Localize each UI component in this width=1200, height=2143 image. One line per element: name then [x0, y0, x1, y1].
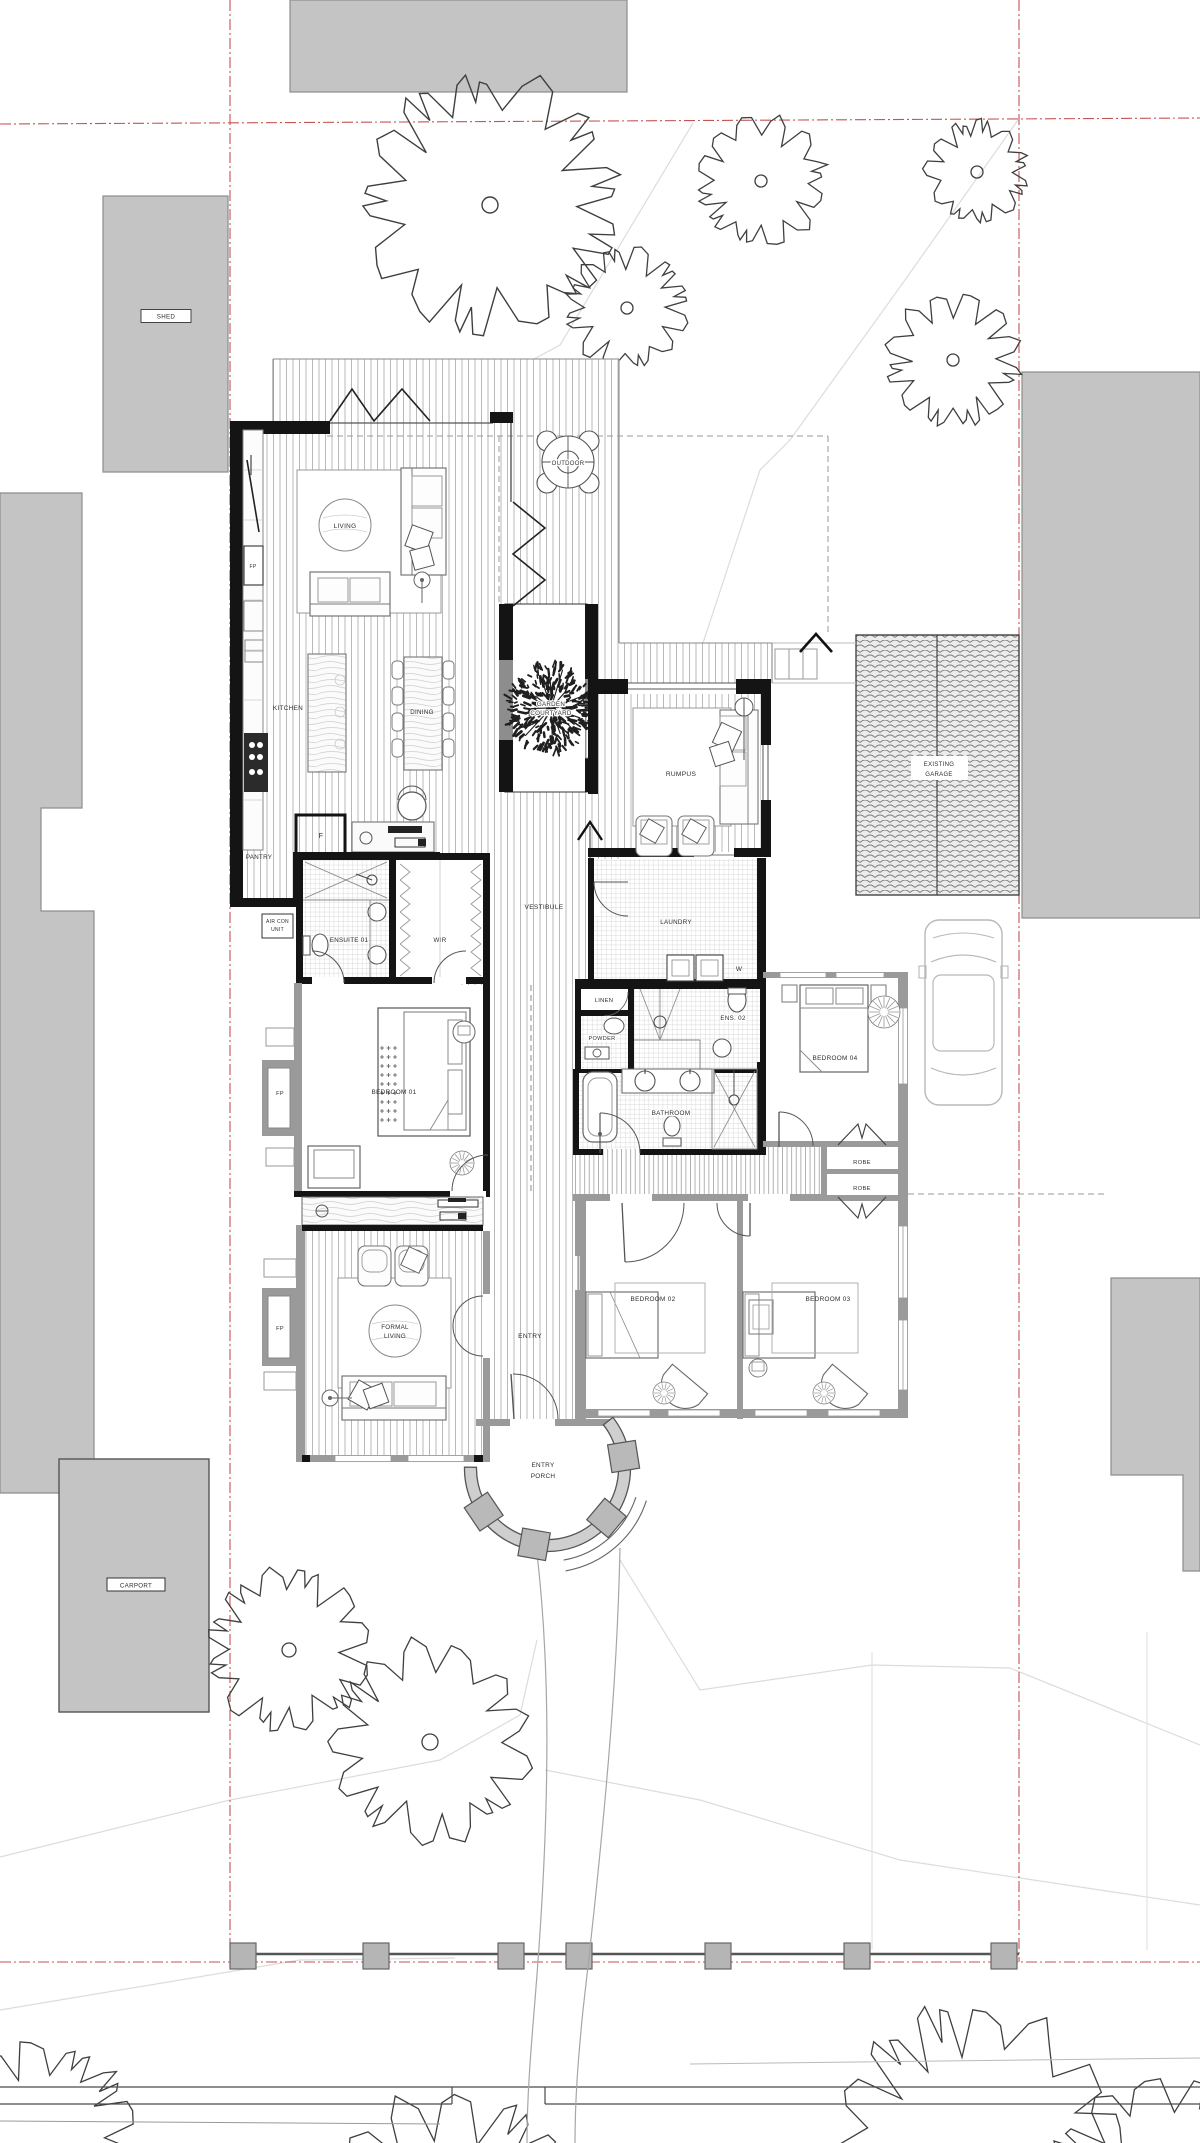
svg-text:OUTDOOR: OUTDOOR	[552, 461, 585, 467]
svg-text:ROBE: ROBE	[853, 1186, 871, 1192]
svg-text:BEDROOM 04: BEDROOM 04	[813, 1055, 858, 1062]
svg-text:UNIT: UNIT	[271, 927, 284, 933]
svg-text:LIVING: LIVING	[334, 523, 357, 530]
svg-text:BEDROOM 01: BEDROOM 01	[372, 1089, 417, 1096]
svg-text:PORCH: PORCH	[531, 1473, 556, 1480]
svg-text:RUMPUS: RUMPUS	[666, 771, 697, 778]
svg-text:ENTRY: ENTRY	[518, 1333, 542, 1340]
svg-text:F: F	[319, 833, 324, 840]
svg-text:BEDROOM 02: BEDROOM 02	[631, 1296, 676, 1303]
svg-text:BEDROOM 03: BEDROOM 03	[806, 1296, 851, 1303]
svg-text:CARPORT: CARPORT	[120, 1583, 152, 1590]
svg-text:SHED: SHED	[157, 314, 176, 321]
svg-text:ENTRY: ENTRY	[531, 1462, 554, 1469]
svg-text:DINING: DINING	[410, 709, 433, 716]
svg-text:FP: FP	[276, 1326, 284, 1332]
svg-text:COURTYARD: COURTYARD	[530, 710, 572, 717]
svg-text:BATHROOM: BATHROOM	[652, 1110, 691, 1117]
svg-text:PANTRY: PANTRY	[246, 854, 272, 861]
svg-text:GARDEN: GARDEN	[537, 701, 565, 708]
svg-text:VESTIBULE: VESTIBULE	[525, 904, 564, 911]
svg-text:ROBE: ROBE	[853, 1160, 871, 1166]
svg-text:POWDER: POWDER	[589, 1036, 616, 1042]
svg-text:FORMAL: FORMAL	[381, 1324, 409, 1331]
svg-text:W: W	[736, 966, 743, 973]
svg-text:EXISTING: EXISTING	[924, 762, 954, 768]
svg-text:LAUNDRY: LAUNDRY	[660, 919, 692, 926]
svg-text:ENSUITE 01: ENSUITE 01	[330, 937, 369, 944]
svg-text:ENS. 02: ENS. 02	[720, 1015, 745, 1022]
svg-text:LINEN: LINEN	[595, 998, 614, 1004]
svg-text:LIVING: LIVING	[384, 1333, 406, 1340]
svg-text:GARAGE: GARAGE	[925, 772, 952, 778]
svg-text:FP: FP	[250, 564, 257, 570]
svg-text:FP: FP	[276, 1091, 284, 1097]
svg-text:KITCHEN: KITCHEN	[273, 705, 303, 712]
svg-text:AIR CON: AIR CON	[266, 919, 289, 925]
